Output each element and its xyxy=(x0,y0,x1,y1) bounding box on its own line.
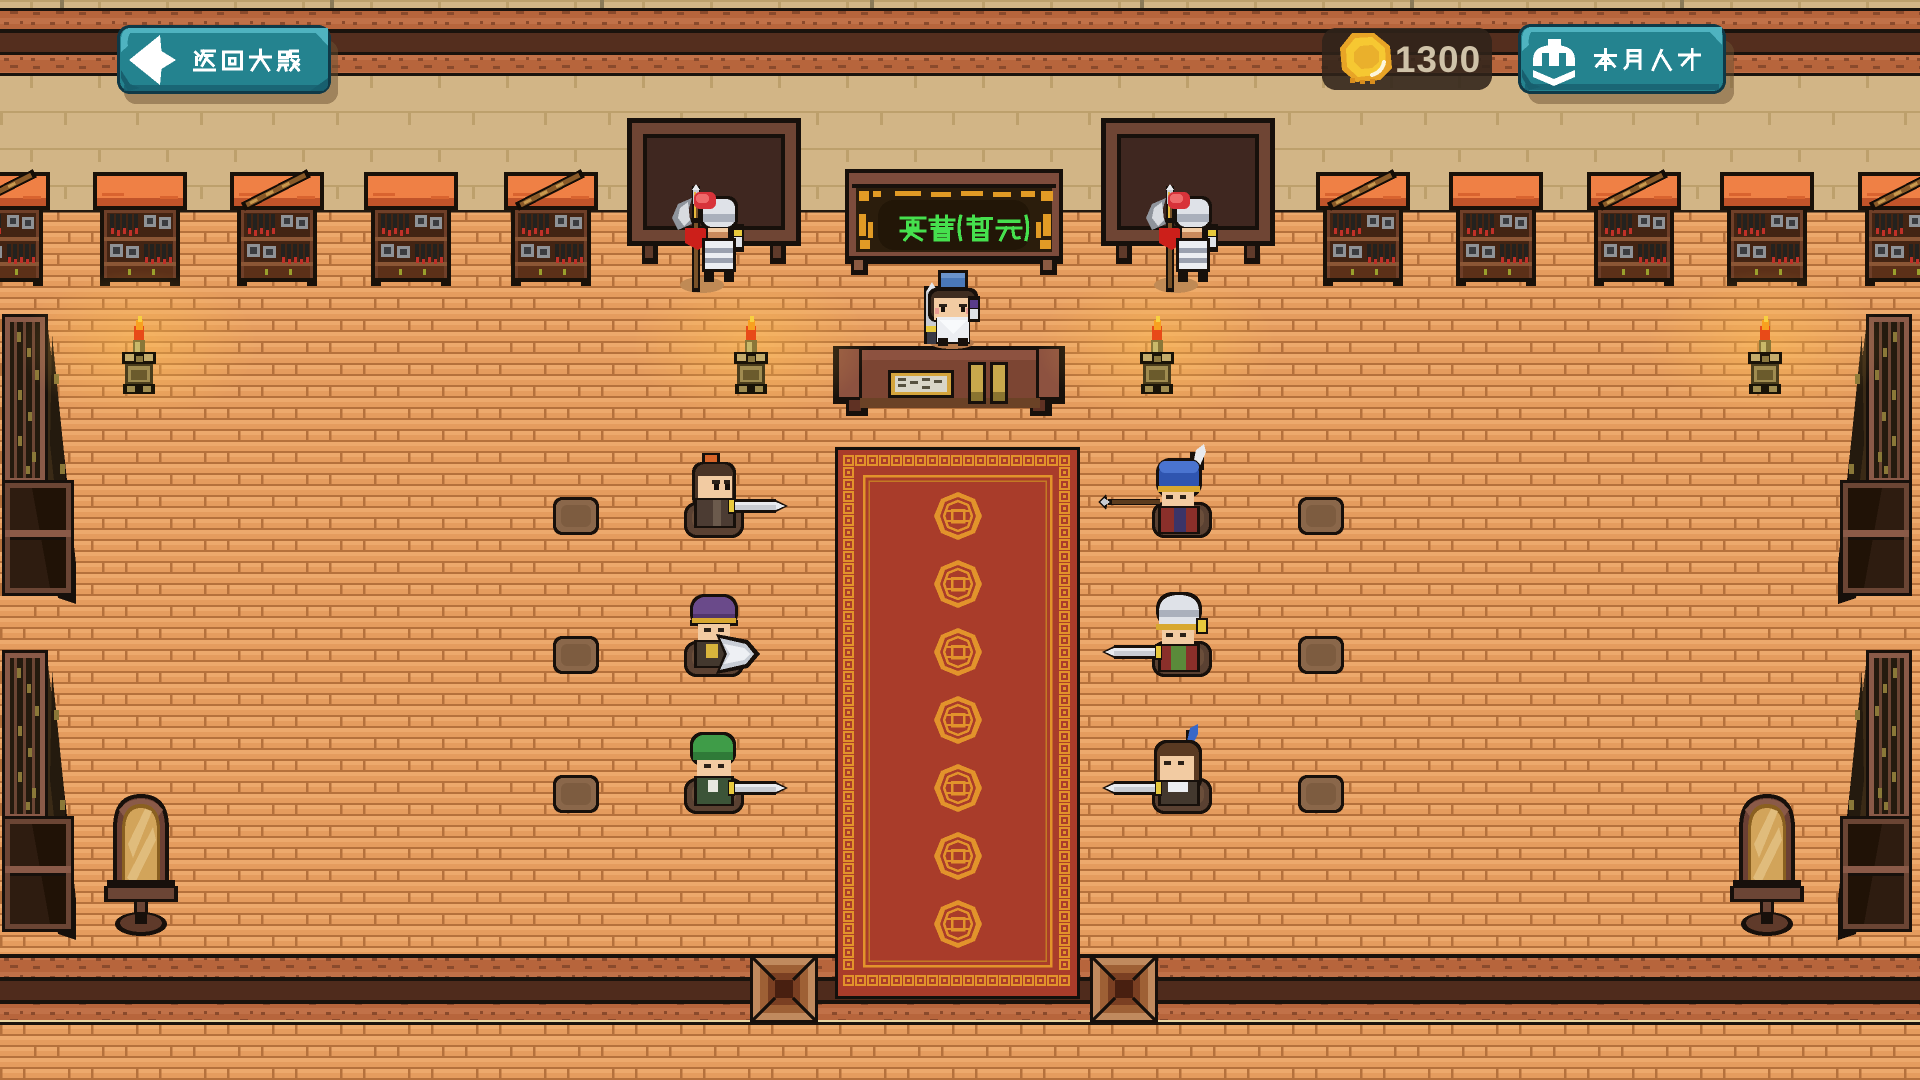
svg-text:1300: 1300 xyxy=(1395,39,1481,80)
